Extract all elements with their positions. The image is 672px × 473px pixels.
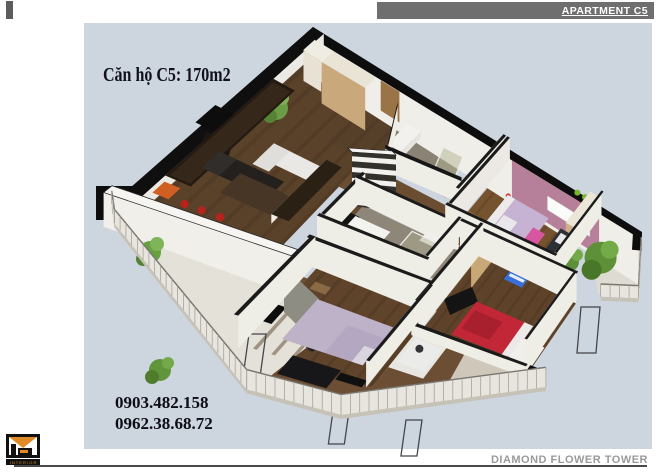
- svg-text:I N T E R I O R: I N T E R I O R: [10, 460, 37, 465]
